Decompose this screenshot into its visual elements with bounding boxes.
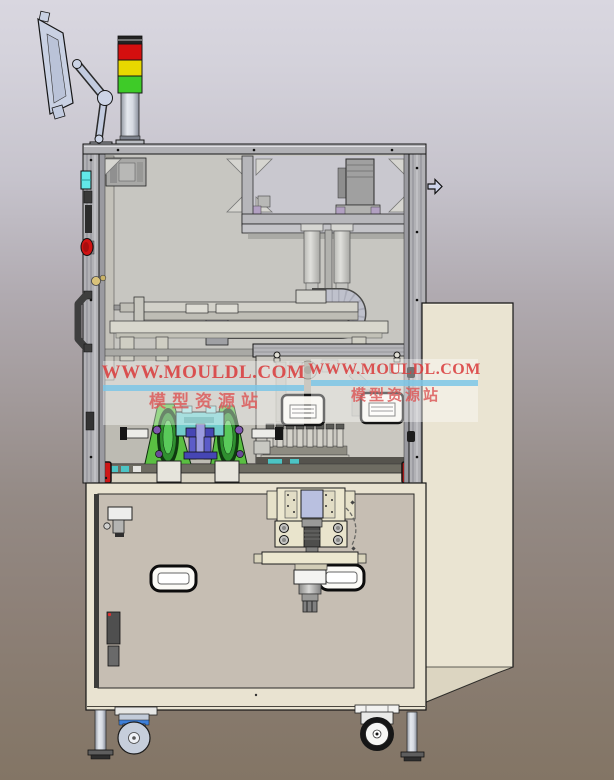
collet-chuck [304, 527, 320, 547]
rail-block [216, 304, 238, 313]
watermark-url-text: WWW.MOULDL.COM [308, 360, 481, 379]
rail-end-plate [134, 297, 144, 323]
watermark-site-name: 模型资源站 [143, 392, 264, 412]
hinge-red-dot [108, 613, 111, 616]
gray-roller [254, 441, 270, 454]
gold-knob [100, 275, 106, 281]
blue-slide-bottom [184, 452, 217, 459]
small-component [258, 196, 270, 207]
machine-3d-render [0, 0, 614, 780]
sensor-mark [121, 466, 129, 472]
side-arm-right [252, 429, 276, 438]
connector-block [84, 191, 92, 203]
enclosure-interior [84, 154, 425, 483]
spindle-shaft-mid [299, 584, 321, 594]
enclosure-bottom-strip [99, 464, 410, 474]
compartment-panel [253, 156, 409, 216]
watermark-underline [311, 380, 478, 386]
arm-base-joint [95, 135, 103, 143]
sensor-mark [268, 459, 282, 464]
cylinder-cap [301, 224, 323, 231]
base-cabinet [86, 483, 426, 710]
side-arm-left [126, 429, 148, 438]
rail-carriage [296, 290, 326, 303]
purple-roller [235, 426, 243, 434]
watermark-right: WWW.MOULDL.COM 模型资源站 [311, 359, 478, 422]
door-latch-right [407, 431, 415, 442]
watermark-underline [103, 385, 304, 391]
rail-motor [120, 303, 134, 312]
mid-rail-left [99, 349, 256, 356]
tower-pole [121, 93, 139, 137]
cabinet-front-panel [98, 494, 414, 688]
enclosure-bottom-rail [84, 473, 425, 483]
spindle-shaft-upper [294, 570, 326, 584]
frame-inner-post-left [99, 153, 105, 483]
tower-light-red [118, 44, 142, 60]
rail-block [186, 304, 208, 313]
compartment-rail [242, 214, 409, 224]
dark-trim-strip [85, 205, 92, 233]
guide-rod [325, 230, 332, 292]
linear-rail [138, 302, 358, 312]
purple-roller [153, 426, 161, 434]
linear-rail-base [138, 312, 358, 320]
spindle-base-plate [262, 552, 358, 564]
watermark-site-name: 模型资源站 [348, 387, 441, 405]
arm-elbow-joint [98, 91, 113, 106]
purple-roller [156, 451, 163, 458]
door-hinge [86, 412, 94, 430]
cabinet-handle-left[interactable] [151, 566, 196, 591]
watermark-url-text: WWW.MOULDL.COM [102, 362, 306, 384]
spindle-tip [303, 601, 317, 612]
purple-roller [237, 451, 244, 458]
mechanism-foot [215, 461, 239, 482]
cad-render-viewport: WWW.MOULDL.COM 模型资源站 WWW.MOULDL.COM 模型资源… [0, 0, 614, 780]
sensor-mark [133, 466, 141, 472]
lavender-block [301, 490, 323, 518]
tower-light-yellow [118, 60, 142, 76]
watermark-left: WWW.MOULDL.COM 模型资源站 [103, 361, 304, 425]
cabinet-door-gap [94, 494, 99, 688]
bobbin-base [263, 446, 347, 455]
door-hinge-lower [107, 612, 120, 666]
tower-light-green [118, 76, 142, 93]
pneumatic-cylinder [304, 231, 320, 283]
arm-shoulder-joint [73, 60, 82, 69]
mechanism-foot [157, 461, 181, 482]
cylinder-cap [331, 224, 353, 231]
table-top [110, 321, 388, 333]
sensor-mark [290, 459, 299, 464]
gold-knob [92, 277, 101, 286]
pneumatic-cylinder [334, 231, 350, 283]
